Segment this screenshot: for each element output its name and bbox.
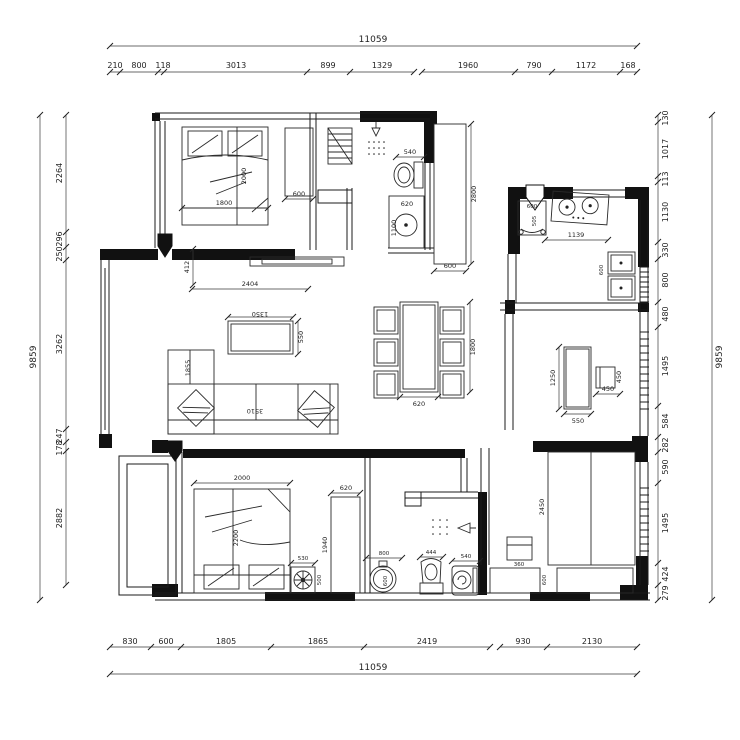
bedroom1-window (155, 121, 165, 248)
dim-top-9: 168 (620, 61, 635, 70)
bay-window (119, 456, 176, 595)
dim-top-0: 210 (107, 61, 122, 70)
dim-right-10: 590 (661, 459, 670, 474)
toilet1 (394, 162, 423, 188)
dim-left-total: 9859 (29, 345, 39, 368)
study-furniture: 1250 550 450 450 (549, 344, 623, 425)
dining-furniture: 1800 620 (374, 299, 477, 408)
dim-bottom-2: 1805 (216, 637, 236, 646)
dim-top-1: 800 (131, 61, 146, 70)
bedroom2-furniture: 2000 2200 530 500 620 1940 (191, 474, 363, 593)
tatami-bed (548, 452, 635, 565)
closet-length-label: 2800 (470, 186, 478, 203)
nightstand2-depth-label: 500 (317, 574, 323, 585)
dining-chairs (374, 307, 464, 398)
sofa-pillow (178, 390, 215, 427)
wardrobe1 (285, 128, 313, 196)
dim-bottom-0: 830 (122, 637, 137, 646)
bedroom1-furniture: 1800 2000 600 (179, 127, 352, 225)
shower2-icon (432, 519, 476, 535)
dim-right-0: 130 (661, 110, 670, 125)
sofa-width-label: 3510 (247, 407, 264, 415)
dim-right-13: 279 (661, 585, 670, 600)
dim-top-total: 11059 (359, 35, 388, 45)
dim-right-2: 113 (661, 171, 670, 186)
dim-left-1: 296 (55, 231, 64, 246)
bed1 (182, 127, 268, 225)
bedroom1-door-arrow (158, 234, 172, 257)
floor-plan-page: 1800 2000 600 540 620 (0, 0, 740, 740)
dining-table (400, 302, 438, 392)
dim-bottom-6: 2130 (582, 637, 602, 646)
dim-top-2: 118 (155, 61, 170, 70)
bed1-width-label: 1800 (216, 199, 233, 207)
nightstand3-width-label: 360 (514, 562, 525, 568)
dim-bottom-4: 2419 (417, 637, 437, 646)
chair-depth-label: 450 (615, 371, 623, 383)
bedroom2-door-arrow (168, 441, 182, 461)
dining-width-label: 620 (413, 400, 425, 408)
cabinet1 (490, 568, 540, 593)
dim-right-6: 480 (661, 306, 670, 321)
shoe-cabinet (328, 128, 352, 164)
dim-chain-left: 9859 2264 296 250 3262 247 178 2882 (29, 112, 69, 603)
wardrobe1-label: 600 (293, 190, 305, 198)
dim-top-5: 1329 (372, 61, 392, 70)
floor-plan-svg: 1800 2000 600 540 620 (0, 0, 740, 740)
dim-bottom-3: 1865 (308, 637, 328, 646)
bidet-width-label: 540 (461, 554, 472, 560)
washer1-depth-label: 1100 (390, 220, 398, 237)
wardrobe2-width-label: 620 (340, 484, 352, 492)
dim-bottom-total: 11059 (359, 663, 388, 673)
desk (564, 347, 591, 409)
kitchen-fixtures: 600 505 1139 600 (518, 191, 635, 300)
dim-right-7: 1495 (661, 356, 670, 376)
bidet (452, 566, 479, 595)
shower-icon (368, 122, 385, 155)
sofa-pillow (298, 391, 335, 428)
dim-top-6: 1960 (458, 61, 478, 70)
dim-top-4: 899 (320, 61, 335, 70)
dim-right-11: 1495 (661, 513, 670, 533)
bathroom2-fixtures: 800 600 444 540 (363, 519, 483, 595)
desk-width-label: 550 (572, 417, 584, 425)
dim-left-3: 3262 (55, 334, 64, 354)
dim-right-8: 584 (661, 413, 670, 428)
wardrobe2 (331, 497, 360, 593)
dim-top-3: 3013 (226, 61, 246, 70)
dim-right-12: 424 (661, 566, 670, 581)
nightstand2-width-label: 530 (298, 556, 309, 562)
closet-width-label: 600 (444, 262, 456, 270)
wardrobe2-length-label: 1940 (321, 537, 329, 554)
dim-left-2: 250 (55, 246, 64, 261)
cabinet-depth-label: 600 (542, 574, 548, 585)
tatami-room: 2450 360 600 (490, 452, 635, 593)
appliance-depth-label: 505 (532, 215, 538, 226)
toilet2 (420, 559, 443, 595)
bed1-length-label: 2000 (240, 168, 248, 185)
sofa-depth-label: 1855 (184, 360, 192, 377)
dim-bottom-5: 930 (515, 637, 530, 646)
dim-chain-bottom: 830 600 1805 1865 2419 930 2130 11059 (107, 637, 640, 677)
kitchen-sink (608, 252, 635, 300)
bed2-length-label: 2200 (232, 530, 240, 547)
dim-right-4: 330 (661, 242, 670, 257)
kitchen-appliance: 600 505 (518, 201, 546, 235)
dim-left-5: 178 (55, 440, 64, 455)
dining-length-label: 1800 (469, 339, 477, 356)
coffee-width-label: 1350 (252, 310, 269, 318)
dim-top-8: 1172 (576, 61, 596, 70)
dim-right-total: 9859 (715, 345, 725, 368)
dim-bottom-1: 600 (158, 637, 173, 646)
hall-closet: 2800 600 (431, 121, 478, 274)
basin-depth-label: 600 (383, 575, 389, 586)
sofa (168, 350, 338, 434)
counter-label: 1139 (568, 231, 585, 239)
dim-chain-right: 130 1017 113 1130 330 800 480 1495 584 2… (655, 110, 725, 603)
nightstand3 (507, 537, 532, 560)
coffee-table (228, 321, 293, 354)
living-room-furniture: 412 2404 1350 550 3510 1855 (168, 246, 344, 434)
dim-right-1: 1017 (661, 139, 670, 159)
coffee-depth-label: 550 (297, 331, 305, 343)
washer1-width-label: 620 (401, 200, 413, 208)
dim-left-6: 2882 (55, 508, 64, 528)
chair-width-label: 450 (602, 385, 614, 393)
dim-right-9: 282 (661, 437, 670, 452)
bathroom1-fixtures: 540 620 1100 (368, 122, 427, 248)
sink-depth-label: 600 (599, 264, 605, 275)
tv-wall-label: 2404 (242, 280, 259, 288)
toilet1-label: 540 (404, 148, 416, 156)
bed2-width-label: 2000 (234, 474, 251, 482)
nightstand-plant (291, 567, 315, 593)
dim-chain-top: 11059 210 800 118 3013 899 1329 1960 790… (107, 35, 640, 75)
dim-right-5: 800 (661, 272, 670, 287)
toilet2-width-label: 444 (426, 550, 437, 556)
dim-right-3: 1130 (661, 202, 670, 222)
basin-width-label: 800 (379, 551, 390, 557)
tatami-length-label: 2450 (538, 499, 546, 516)
dim-top-7: 790 (526, 61, 541, 70)
tv-offset-label: 412 (183, 261, 191, 273)
desk-length-label: 1250 (549, 370, 557, 387)
dim-left-0: 2264 (55, 163, 64, 183)
appliance-width-label: 600 (527, 204, 538, 210)
